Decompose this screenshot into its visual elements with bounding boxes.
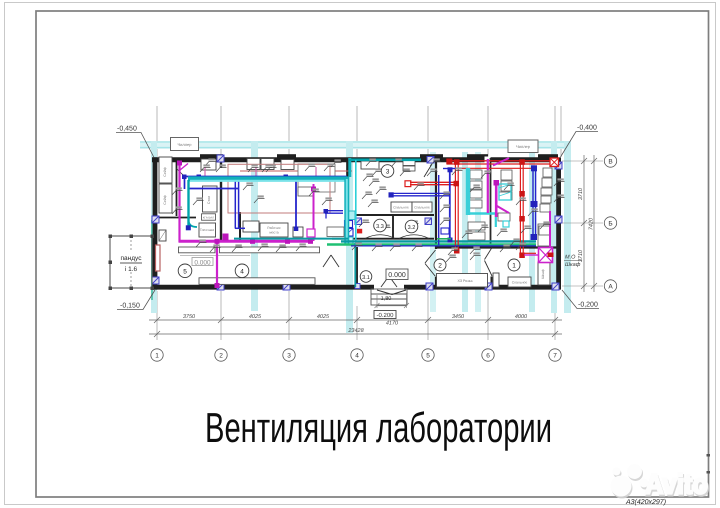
svg-text:3.1: 3.1: [362, 275, 370, 281]
svg-text:Топочная: Топочная: [200, 228, 215, 232]
svg-text:-0,400: -0,400: [577, 125, 597, 132]
svg-text:6: 6: [486, 353, 490, 360]
svg-text:-0,200: -0,200: [578, 302, 598, 309]
svg-text:А: А: [608, 284, 613, 291]
svg-text:3710: 3710: [578, 187, 584, 200]
svg-text:-0,450: -0,450: [117, 126, 137, 133]
svg-text:ХЗ Резка: ХЗ Резка: [458, 279, 473, 283]
svg-text:КГА БАЛ: КГА БАЛ: [203, 215, 214, 219]
svg-text:-0.200: -0.200: [376, 312, 394, 319]
svg-text:3: 3: [386, 169, 390, 176]
svg-text:Спальное: Спальное: [414, 206, 430, 210]
svg-text:4000: 4000: [515, 314, 528, 320]
svg-text:-0,150: -0,150: [120, 303, 140, 310]
svg-text:3450: 3450: [452, 314, 465, 320]
svg-text:23428: 23428: [347, 328, 364, 334]
svg-text:Сейф: Сейф: [163, 195, 167, 205]
svg-text:5: 5: [183, 268, 187, 275]
svg-text:1: 1: [512, 263, 516, 270]
svg-text:4: 4: [240, 268, 244, 275]
svg-text:Сейф: Сейф: [163, 167, 167, 177]
svg-text:1,80: 1,80: [381, 296, 392, 302]
svg-text:4025: 4025: [249, 314, 262, 320]
svg-text:места: места: [269, 231, 278, 235]
svg-text:Б: Б: [608, 221, 612, 228]
svg-text:В: В: [608, 159, 612, 166]
svg-text:Стол: Стол: [207, 196, 211, 204]
svg-text:Avito: Avito: [645, 469, 708, 500]
svg-text:3: 3: [287, 353, 291, 360]
svg-text:3.3: 3.3: [376, 224, 384, 230]
svg-text:Вентиляция лаборатории: Вентиляция лаборатории: [205, 404, 552, 451]
svg-text:3710: 3710: [578, 249, 584, 262]
svg-text:4: 4: [355, 353, 359, 360]
svg-text:2: 2: [438, 263, 442, 270]
svg-text:1: 1: [155, 353, 159, 360]
svg-text:Спальное: Спальное: [512, 281, 528, 285]
svg-text:i 1.6: i 1.6: [125, 266, 138, 273]
svg-text:0.000: 0.000: [194, 259, 211, 266]
svg-text:4170: 4170: [386, 321, 399, 327]
svg-text:3750: 3750: [183, 314, 196, 320]
svg-text:М.О: М.О: [565, 255, 576, 261]
svg-text:Чиллер: Чиллер: [516, 144, 531, 149]
svg-text:Чиллер: Чиллер: [177, 142, 192, 147]
svg-text:7: 7: [553, 353, 557, 360]
svg-text:пандус: пандус: [121, 255, 143, 262]
svg-text:2: 2: [219, 353, 223, 360]
svg-text:4025: 4025: [317, 314, 330, 320]
svg-text:Шкаф: Шкаф: [565, 262, 581, 268]
svg-text:0.000: 0.000: [388, 272, 406, 279]
svg-text:Шкаф: Шкаф: [541, 269, 545, 279]
svg-text:7420: 7420: [589, 217, 595, 230]
svg-text:3.2: 3.2: [408, 225, 416, 231]
svg-text:5: 5: [426, 353, 430, 360]
svg-text:Рабочие: Рабочие: [267, 226, 280, 230]
svg-text:Спальное: Спальное: [393, 206, 409, 210]
